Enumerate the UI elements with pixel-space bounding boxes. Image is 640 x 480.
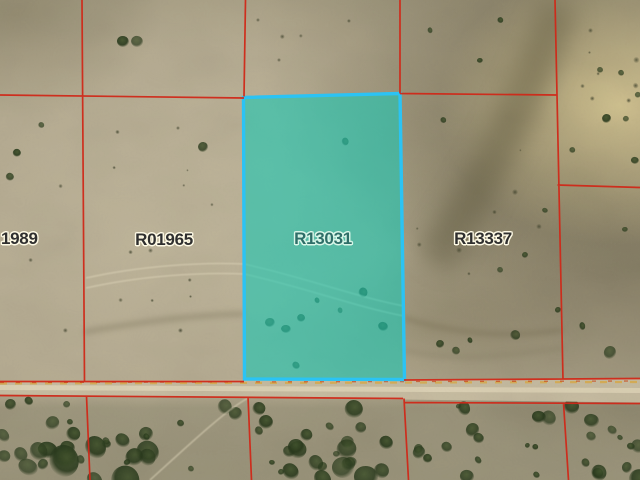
map-canvas[interactable]: 1989 R01965 R13031 R13337 — [0, 0, 640, 480]
parcel-label-r13337: R13337 — [454, 229, 512, 249]
parcel-label-1989: 1989 — [1, 229, 38, 249]
parcel-label-r13031: R13031 — [294, 229, 352, 249]
parcel-label-r01965: R01965 — [135, 230, 193, 250]
